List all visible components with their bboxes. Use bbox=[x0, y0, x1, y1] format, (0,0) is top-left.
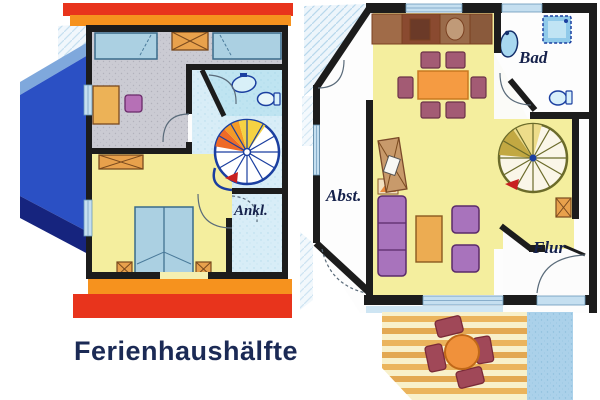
dining-chair bbox=[446, 52, 465, 68]
floorplan-svg: Ankl. bbox=[0, 0, 600, 400]
sketch-left-strip bbox=[302, 96, 314, 146]
dining-chair bbox=[421, 102, 440, 118]
armchair-bottom bbox=[452, 245, 479, 272]
toilet-ground bbox=[550, 91, 573, 105]
stove-icon bbox=[410, 19, 430, 40]
single-bed-right bbox=[213, 33, 281, 59]
spiral-staircase-ground bbox=[499, 124, 567, 192]
roof-band-orange-top bbox=[70, 15, 291, 26]
dining-chair bbox=[471, 77, 486, 98]
dining-table bbox=[418, 71, 468, 99]
label-dressing: Ankl. bbox=[233, 203, 268, 219]
armchair-top bbox=[452, 206, 479, 233]
dining-chair bbox=[398, 77, 413, 98]
upper-floor-plan: Ankl. bbox=[20, 3, 293, 318]
terrace bbox=[366, 306, 573, 400]
single-bed-left bbox=[95, 33, 157, 59]
dining-chair bbox=[446, 102, 465, 118]
roof-gable bbox=[20, 42, 88, 254]
floorplan-image: Ankl. bbox=[0, 0, 600, 400]
terrace-path bbox=[527, 312, 573, 400]
terrace-edge-strip bbox=[366, 306, 503, 313]
roof-band-red-bottom bbox=[73, 294, 292, 318]
kitchen-sink-icon bbox=[446, 18, 464, 40]
caption: Ferienhaushälfte bbox=[74, 336, 298, 366]
stool bbox=[125, 95, 142, 112]
wardrobe-top bbox=[172, 32, 208, 50]
roof-band-orange-bottom bbox=[88, 279, 292, 294]
balcony-door-sill bbox=[160, 272, 208, 279]
garden-table bbox=[445, 335, 479, 369]
shower bbox=[543, 16, 571, 43]
coffee-table bbox=[416, 216, 442, 262]
dining-chair bbox=[421, 52, 440, 68]
label-hallway: Flur bbox=[532, 238, 566, 257]
roof-band-red-top bbox=[63, 3, 293, 16]
sofa bbox=[378, 196, 406, 276]
desk bbox=[93, 86, 119, 124]
double-bed bbox=[135, 207, 193, 275]
ground-floor-plan: Bad Abst. Flur bbox=[300, 3, 597, 313]
label-storage: Abst. bbox=[325, 186, 361, 205]
wardrobe-left bbox=[99, 155, 143, 169]
toilet-upper bbox=[258, 93, 281, 106]
label-bath: Bad bbox=[518, 48, 548, 67]
sketch-entrance-area bbox=[300, 232, 313, 310]
kitchen-counter bbox=[372, 14, 492, 44]
stair-side-cabinet bbox=[556, 198, 571, 217]
